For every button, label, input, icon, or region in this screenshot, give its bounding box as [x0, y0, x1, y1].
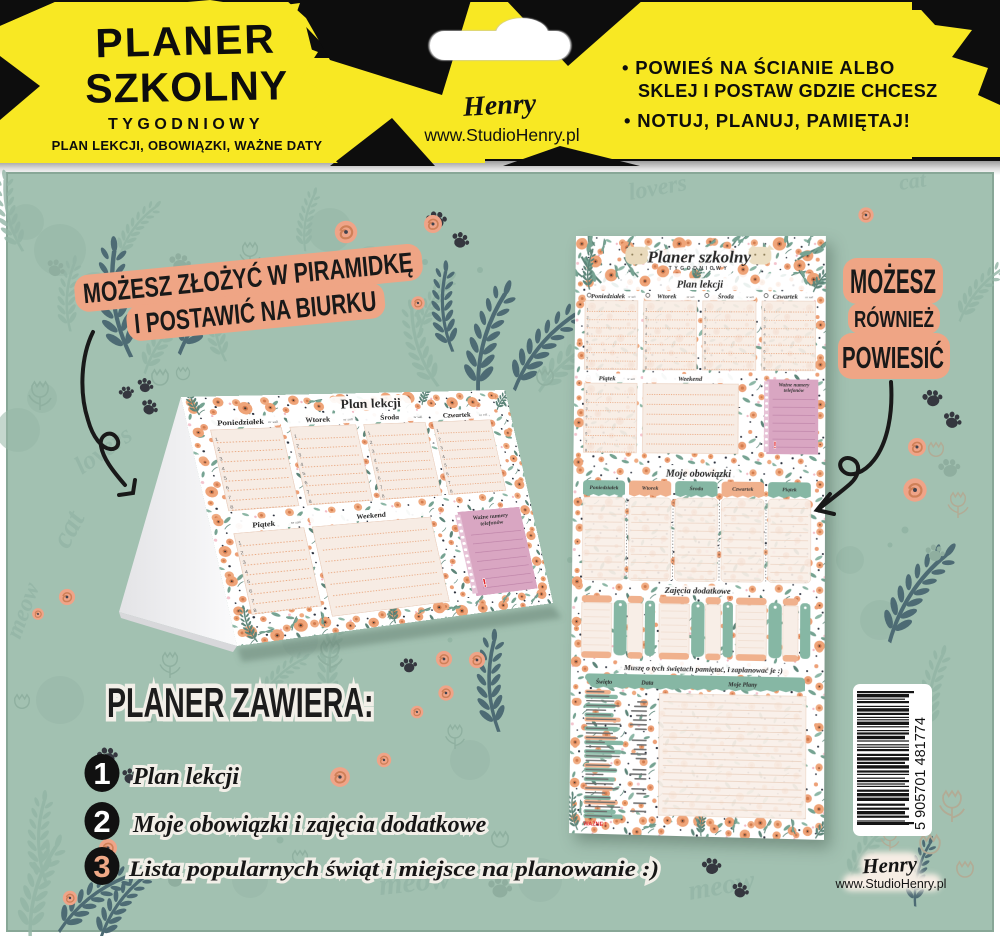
svg-text:RÓWNIEŻ: RÓWNIEŻ: [854, 305, 934, 332]
svg-text:Plan lekcji: Plan lekcji: [132, 764, 239, 790]
svg-text:1: 1: [93, 756, 110, 791]
svg-text:3: 3: [93, 849, 110, 884]
svg-text:2: 2: [93, 804, 110, 839]
svg-text:5 905701 481774: 5 905701 481774: [913, 717, 929, 830]
svg-text:Lista popularnych świąt i miej: Lista popularnych świąt i miejsce na pla…: [128, 856, 659, 881]
svg-text:POWIESIĆ: POWIESIĆ: [842, 339, 944, 375]
svg-text:Moje obowiązki i zajęcia dodat: Moje obowiązki i zajęcia dodatkowe: [132, 812, 487, 838]
svg-text:MOŻESZ: MOŻESZ: [850, 263, 936, 301]
svg-text:PLANER ZAWIERA:: PLANER ZAWIERA:: [107, 678, 374, 726]
svg-text:Henry: Henry: [861, 852, 919, 879]
svg-text:www.StudioHenry.pl: www.StudioHenry.pl: [835, 877, 947, 891]
